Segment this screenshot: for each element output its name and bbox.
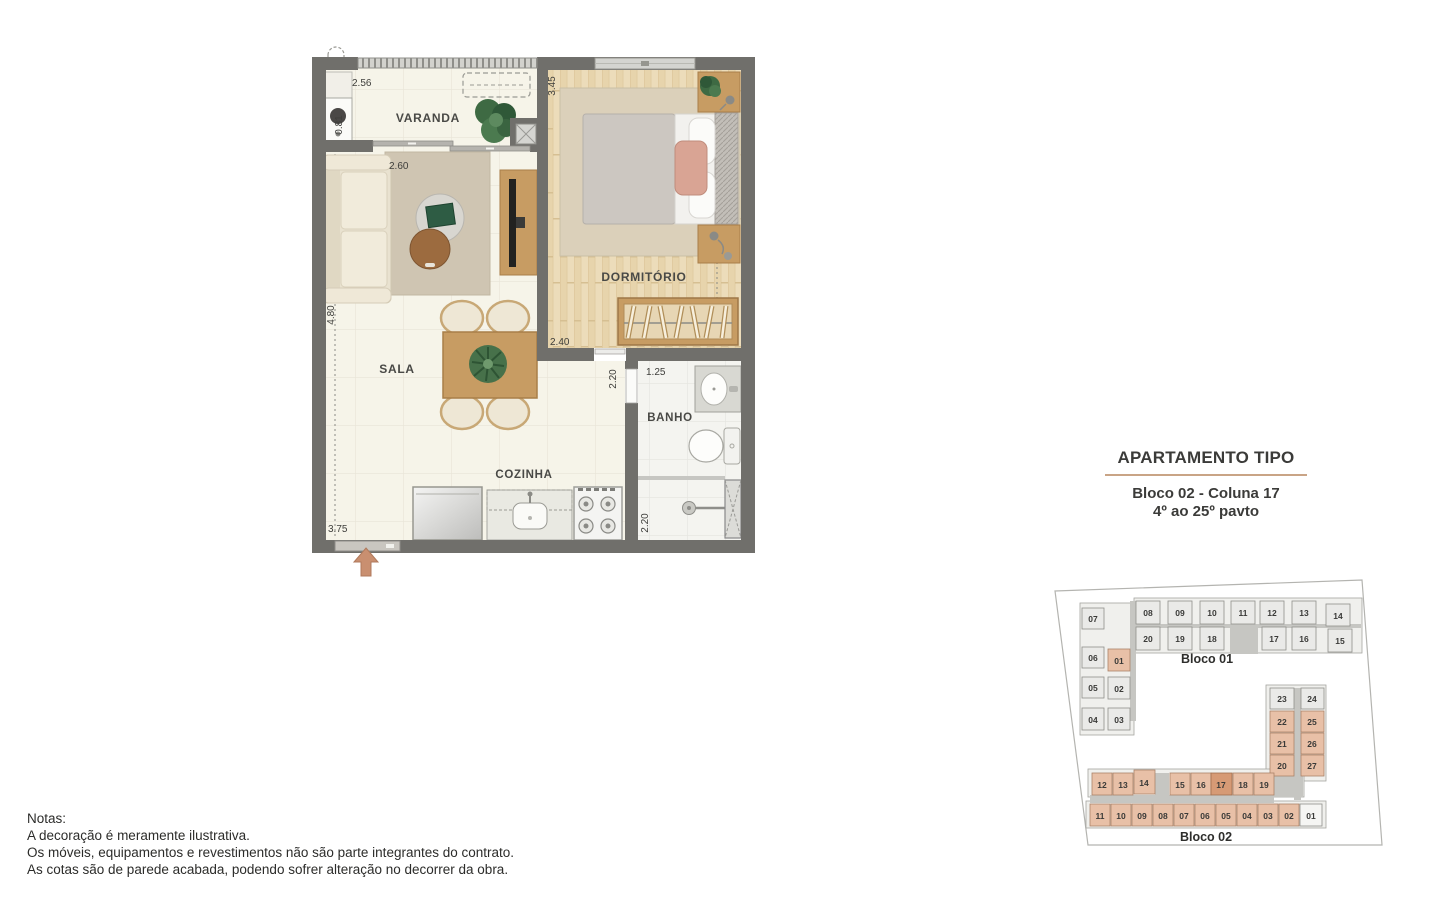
svg-text:14: 14 bbox=[1333, 611, 1343, 621]
cozinha-label: COZINHA bbox=[495, 469, 552, 481]
svg-text:03: 03 bbox=[1263, 811, 1273, 821]
dim-sala-bottom: 3.75 bbox=[328, 524, 348, 535]
unit-b01-05: 05 bbox=[1082, 677, 1104, 698]
dim-sala-width: 2.60 bbox=[389, 161, 409, 172]
unit-b02-27: 27 bbox=[1301, 755, 1324, 776]
svg-text:13: 13 bbox=[1118, 780, 1128, 790]
unit-b02-07: 07 bbox=[1174, 804, 1194, 826]
unit-b02-12: 12 bbox=[1092, 773, 1112, 795]
svg-text:18: 18 bbox=[1207, 634, 1217, 644]
unit-b01-10: 10 bbox=[1200, 601, 1224, 624]
unit-b02-08: 08 bbox=[1153, 804, 1173, 826]
dim-dormitorio-width: 2.40 bbox=[550, 337, 570, 348]
bathroom-vanity-sink bbox=[695, 366, 741, 412]
svg-text:19: 19 bbox=[1175, 634, 1185, 644]
notes-line-1: A decoração é meramente ilustrativa. bbox=[27, 827, 514, 844]
svg-text:12: 12 bbox=[1097, 780, 1107, 790]
svg-text:01: 01 bbox=[1114, 656, 1124, 666]
svg-text:08: 08 bbox=[1158, 811, 1168, 821]
unit-b02-16: 16 bbox=[1191, 773, 1211, 795]
svg-text:17: 17 bbox=[1216, 780, 1226, 790]
bloco-01-label: Bloco 01 bbox=[1181, 652, 1233, 666]
svg-text:13: 13 bbox=[1299, 608, 1309, 618]
nightstand-top bbox=[698, 72, 740, 112]
svg-text:20: 20 bbox=[1143, 634, 1153, 644]
unit-b01-19: 19 bbox=[1168, 627, 1192, 650]
tv-sideboard bbox=[500, 170, 537, 275]
svg-text:04: 04 bbox=[1242, 811, 1252, 821]
svg-text:16: 16 bbox=[1196, 780, 1206, 790]
refrigerator bbox=[413, 487, 482, 540]
unit-b01-12: 12 bbox=[1260, 601, 1284, 624]
unit-b02-23: 23 bbox=[1270, 688, 1294, 709]
svg-text:17: 17 bbox=[1269, 634, 1279, 644]
svg-text:05: 05 bbox=[1088, 683, 1098, 693]
unit-b01-15: 15 bbox=[1328, 629, 1352, 652]
unit-b02-01: 01 bbox=[1300, 804, 1322, 826]
svg-text:10: 10 bbox=[1207, 608, 1217, 618]
bed bbox=[583, 113, 738, 224]
svg-text:07: 07 bbox=[1179, 811, 1189, 821]
unit-b02-14: 14 bbox=[1134, 770, 1155, 794]
svg-text:06: 06 bbox=[1088, 653, 1098, 663]
unit-b02-10: 10 bbox=[1111, 804, 1131, 826]
notes-line-2: Os móveis, equipamentos e revestimentos … bbox=[27, 844, 514, 861]
dim-passage-depth: 2.20 bbox=[608, 369, 619, 389]
svg-text:09: 09 bbox=[1137, 811, 1147, 821]
stove bbox=[574, 487, 622, 540]
unit-b02-24: 24 bbox=[1301, 688, 1324, 709]
coffee-table-brown bbox=[410, 229, 450, 269]
unit-b01-07: 07 bbox=[1082, 608, 1104, 629]
unit-b01-17: 17 bbox=[1262, 627, 1286, 650]
svg-text:10: 10 bbox=[1116, 811, 1126, 821]
svg-text:05: 05 bbox=[1221, 811, 1231, 821]
svg-text:15: 15 bbox=[1335, 636, 1345, 646]
unit-b02-02: 02 bbox=[1279, 804, 1299, 826]
sala-label: SALA bbox=[379, 362, 415, 376]
bathroom-door bbox=[626, 369, 637, 403]
svg-text:03: 03 bbox=[1114, 715, 1124, 725]
unit-b02-25: 25 bbox=[1301, 711, 1324, 732]
dim-sala-depth: 4.80 bbox=[326, 305, 337, 325]
unit-b02-19: 19 bbox=[1254, 773, 1274, 795]
svg-text:08: 08 bbox=[1143, 608, 1153, 618]
svg-text:11: 11 bbox=[1239, 608, 1248, 618]
svg-text:11: 11 bbox=[1096, 811, 1105, 821]
svg-text:22: 22 bbox=[1277, 717, 1287, 727]
table-plant bbox=[469, 345, 507, 383]
unit-b02-11: 11 bbox=[1090, 804, 1110, 826]
unit-b02-21: 21 bbox=[1270, 733, 1294, 754]
toilet bbox=[689, 428, 740, 464]
unit-b01-11: 11 bbox=[1231, 601, 1255, 624]
dim-shower-depth: 2.20 bbox=[640, 513, 651, 533]
unit-b01-08: 08 bbox=[1136, 601, 1160, 624]
unit-b01-13: 13 bbox=[1292, 601, 1316, 624]
door-swing-icon bbox=[328, 47, 344, 57]
unit-b01-16: 16 bbox=[1292, 627, 1316, 650]
bloco-02-label: Bloco 02 bbox=[1180, 830, 1232, 844]
title-block: APARTAMENTO TIPO Bloco 02 - Coluna 17 4º… bbox=[1105, 448, 1307, 521]
unit-b01-09: 09 bbox=[1168, 601, 1192, 624]
varanda-railing bbox=[358, 58, 537, 68]
page-title: APARTAMENTO TIPO bbox=[1105, 448, 1307, 468]
duct-shaft bbox=[725, 480, 741, 538]
svg-text:26: 26 bbox=[1307, 739, 1317, 749]
sofa bbox=[323, 155, 391, 303]
unit-b01-01: 01 bbox=[1108, 649, 1130, 671]
nightstand-bottom bbox=[698, 225, 740, 263]
duct-varanda bbox=[516, 124, 536, 144]
unit-b01-18: 18 bbox=[1200, 627, 1224, 650]
unit-b02-22: 22 bbox=[1270, 711, 1294, 732]
dim-varanda-width: 2.56 bbox=[352, 78, 372, 89]
dining-table bbox=[441, 301, 537, 429]
svg-text:20: 20 bbox=[1277, 761, 1287, 771]
banho-label: BANHO bbox=[647, 412, 693, 424]
unit-b02-06: 06 bbox=[1195, 804, 1215, 826]
svg-text:04: 04 bbox=[1088, 715, 1098, 725]
unit-b02-26: 26 bbox=[1301, 733, 1324, 754]
unit-b01-20: 20 bbox=[1136, 627, 1160, 650]
unit-b02-09: 09 bbox=[1132, 804, 1152, 826]
svg-text:25: 25 bbox=[1307, 717, 1317, 727]
unit-b01-14: 14 bbox=[1326, 604, 1350, 626]
notes-heading: Notas: bbox=[27, 810, 514, 827]
svg-text:07: 07 bbox=[1088, 614, 1098, 624]
unit-b01-06: 06 bbox=[1082, 647, 1104, 668]
svg-text:24: 24 bbox=[1307, 694, 1317, 704]
dormitorio-label: DORMITÓRIO bbox=[601, 269, 686, 284]
kitchen-counter-sink bbox=[487, 490, 572, 540]
notes-line-3: As cotas são de parede acabada, podendo … bbox=[27, 861, 514, 878]
unit-b02-13: 13 bbox=[1113, 773, 1133, 795]
unit-b02-15: 15 bbox=[1170, 773, 1190, 795]
floor-plan-page: { "plan": { "rooms": { "varanda": "VARAN… bbox=[0, 0, 1440, 900]
svg-text:23: 23 bbox=[1277, 694, 1287, 704]
svg-text:02: 02 bbox=[1284, 811, 1294, 821]
apartment-floor-plan: VARANDA SALA COZINHA DORMITÓRIO BANHO 2.… bbox=[308, 42, 768, 590]
svg-text:15: 15 bbox=[1175, 780, 1185, 790]
svg-text:12: 12 bbox=[1267, 608, 1277, 618]
svg-text:01: 01 bbox=[1306, 811, 1316, 821]
dim-varanda-depth: 0.81 bbox=[334, 115, 345, 135]
svg-text:14: 14 bbox=[1139, 778, 1149, 788]
svg-text:27: 27 bbox=[1307, 761, 1317, 771]
unit-b02-05: 05 bbox=[1216, 804, 1236, 826]
notes-block: Notas: A decoração é meramente ilustrati… bbox=[27, 810, 514, 878]
dim-banho-width: 1.25 bbox=[646, 367, 666, 378]
unit-b02-03: 03 bbox=[1258, 804, 1278, 826]
title-subtitle-2: 4º ao 25º pavto bbox=[1105, 503, 1307, 521]
svg-text:19: 19 bbox=[1259, 780, 1269, 790]
svg-text:18: 18 bbox=[1238, 780, 1248, 790]
unit-b02-04: 04 bbox=[1237, 804, 1257, 826]
svg-text:06: 06 bbox=[1200, 811, 1210, 821]
wardrobe bbox=[618, 298, 738, 345]
svg-text:02: 02 bbox=[1114, 684, 1124, 694]
unit-b01-04: 04 bbox=[1082, 708, 1104, 730]
bedroom-door bbox=[595, 349, 625, 354]
bedroom-window bbox=[595, 58, 695, 69]
svg-text:21: 21 bbox=[1277, 739, 1287, 749]
dim-dormitorio-depth: 3.45 bbox=[547, 76, 558, 96]
svg-text:16: 16 bbox=[1299, 634, 1309, 644]
unit-b01-02: 02 bbox=[1108, 677, 1130, 699]
unit-b02-18: 18 bbox=[1233, 773, 1253, 795]
unit-b01-03: 03 bbox=[1108, 708, 1130, 730]
varanda-label: VARANDA bbox=[396, 111, 460, 125]
title-subtitle-1: Bloco 02 - Coluna 17 bbox=[1105, 485, 1307, 503]
svg-text:09: 09 bbox=[1175, 608, 1185, 618]
site-map: 07 06 05 04 01 02 03 08 09 10 11 12 13 1… bbox=[1050, 577, 1395, 852]
title-divider bbox=[1105, 474, 1307, 476]
unit-b02-17-highlighted: 17 bbox=[1211, 773, 1232, 795]
